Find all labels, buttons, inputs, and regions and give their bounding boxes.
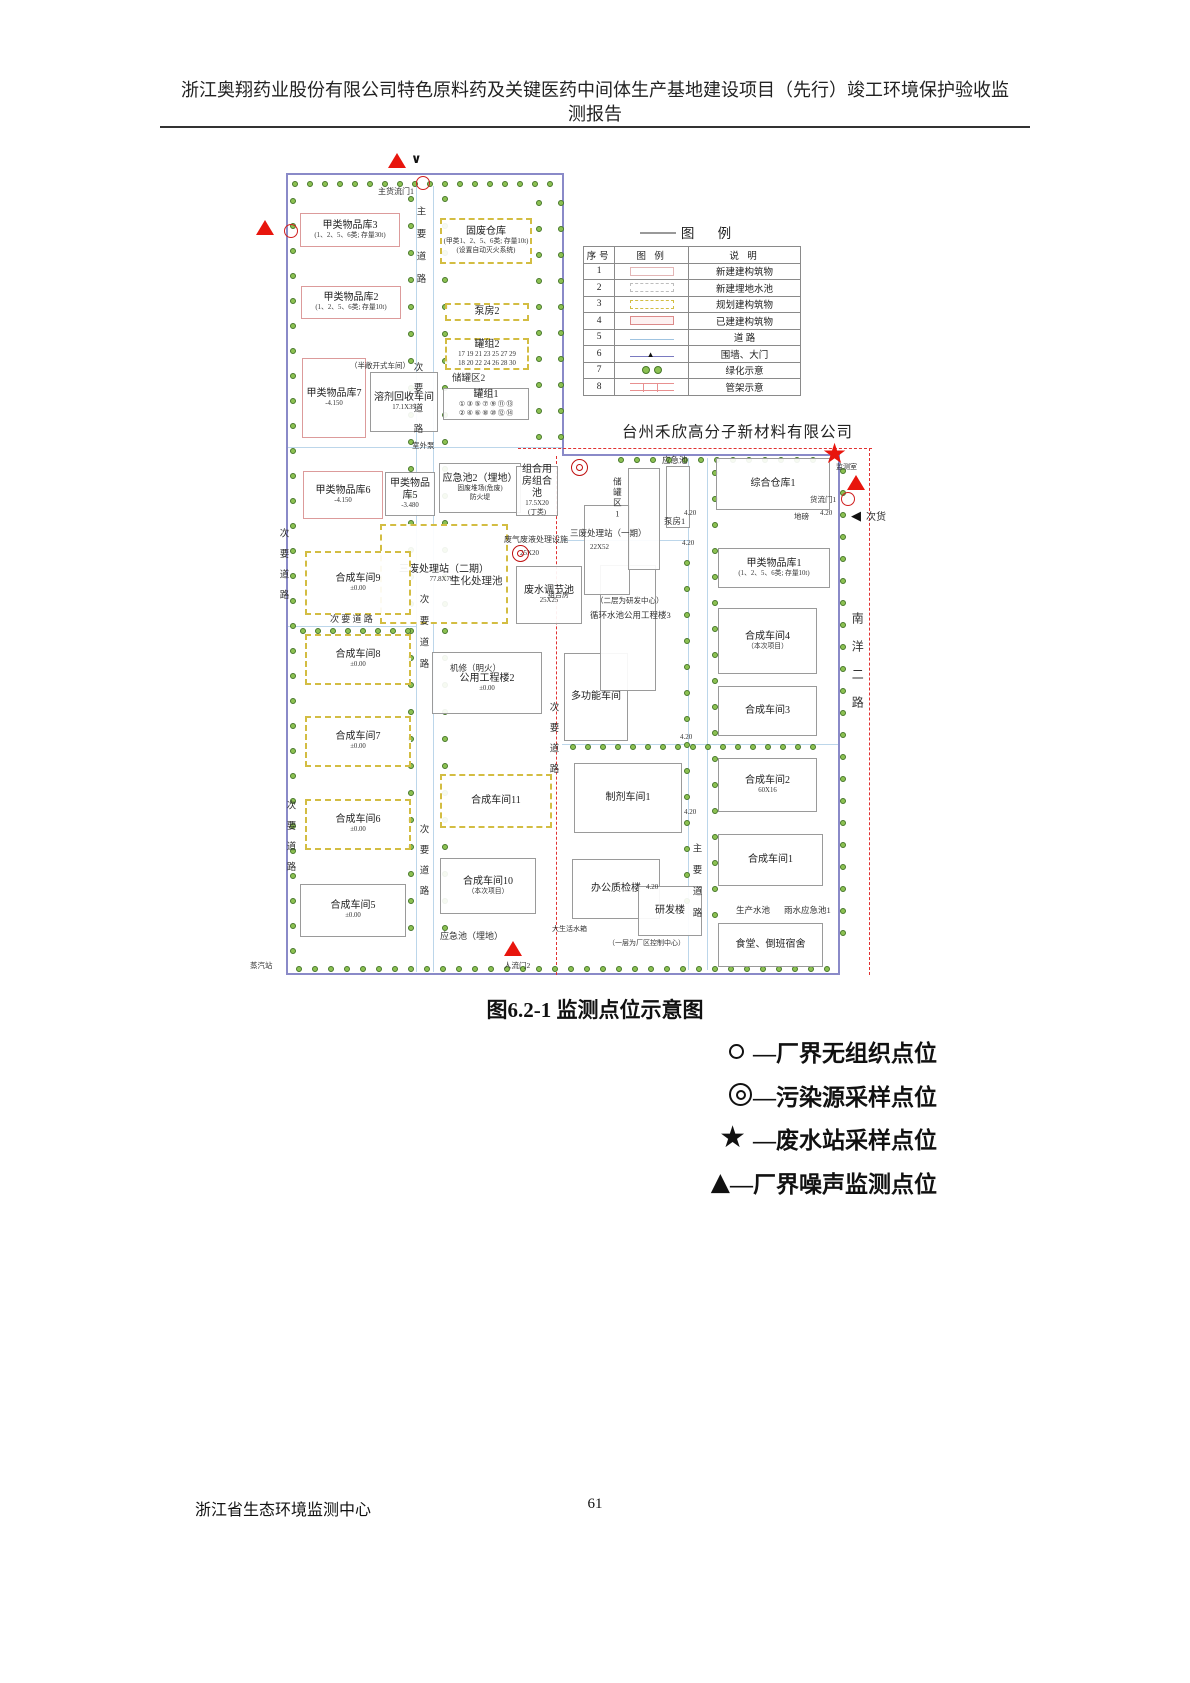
map-text-label: 次货 bbox=[866, 512, 886, 523]
tree-icon bbox=[408, 709, 414, 715]
tree-icon bbox=[290, 898, 296, 904]
map-text-label: 应急池（埋地） bbox=[440, 932, 503, 942]
legend-header-symbol: 图 例 bbox=[615, 247, 689, 264]
building-sublabel: 18 20 22 24 26 28 30 bbox=[458, 360, 516, 369]
building-chuguanqu-1 bbox=[628, 468, 660, 570]
map-text-label: 22X52 bbox=[590, 544, 609, 552]
tree-icon bbox=[376, 966, 382, 972]
tree-icon bbox=[536, 434, 542, 440]
tree-icon bbox=[536, 330, 542, 336]
building-guanzu-2: 罐组217 19 21 23 25 27 2918 20 22 24 26 28… bbox=[445, 338, 529, 370]
building-jialei-wupinku-1: 甲类物品库1(1、2、5、6类; 存量10t) bbox=[718, 548, 830, 588]
building-label: 溶剂回收车间 bbox=[374, 392, 434, 404]
road-line bbox=[288, 626, 416, 627]
map-text-label: 储罐区2 bbox=[452, 374, 485, 384]
tree-icon bbox=[440, 966, 446, 972]
plant-fence-line bbox=[562, 454, 840, 456]
tree-icon bbox=[502, 181, 508, 187]
building-gongyong-gongchenglou-2: 公用工程楼2±0.00 bbox=[432, 652, 542, 714]
tree-icon bbox=[712, 678, 718, 684]
tree-icon bbox=[337, 181, 343, 187]
tree-icon bbox=[645, 744, 651, 750]
building-label: 泵房2 bbox=[475, 306, 500, 318]
building-sublabel: ±0.00 bbox=[345, 912, 361, 921]
tree-icon bbox=[367, 181, 373, 187]
map-text-label: 主货流门1 bbox=[378, 188, 414, 197]
building-label: 合成车间11 bbox=[471, 795, 521, 807]
building-label: 甲类物品库5 bbox=[387, 478, 433, 502]
building-sublabel: -3.480 bbox=[401, 502, 419, 511]
building-sublabel: 固废堆场(危废) bbox=[457, 485, 502, 494]
building-sublabel: ② ④ ⑥ ⑧ ⑩ ⑫ ⑭ bbox=[459, 410, 513, 419]
building-label: 制剂车间1 bbox=[606, 792, 651, 804]
building-label: 合成车间6 bbox=[336, 814, 381, 826]
tree-icon bbox=[558, 252, 564, 258]
legend-row-desc: 规划建构筑物 bbox=[689, 296, 801, 313]
tree-icon bbox=[344, 966, 350, 972]
tree-icon bbox=[290, 923, 296, 929]
tree-icon bbox=[618, 457, 624, 463]
tree-icon bbox=[684, 586, 690, 592]
tree-icon bbox=[290, 448, 296, 454]
tree-icon bbox=[600, 744, 606, 750]
building-label: 罐组1 bbox=[474, 389, 499, 401]
legend-row: 2新建埋地水池 bbox=[584, 280, 801, 297]
tree-icon bbox=[442, 331, 448, 337]
tree-icon bbox=[840, 930, 846, 936]
map-text-label: 生化处理池 bbox=[450, 576, 503, 588]
legend-row: 6围墙、大门 bbox=[584, 346, 801, 363]
tree-icon bbox=[712, 522, 718, 528]
tree-icon bbox=[840, 666, 846, 672]
building-label: 食堂、倒班宿舍 bbox=[736, 939, 806, 951]
legend-row-desc: 新建建构筑物 bbox=[689, 263, 801, 280]
circle-marker bbox=[416, 176, 430, 190]
tree-icon bbox=[328, 966, 334, 972]
road-name-label: 储罐区1 bbox=[612, 477, 621, 521]
building-zhiji-1: 制剂车间1 bbox=[574, 763, 682, 833]
tree-icon bbox=[290, 498, 296, 504]
existing-symbol-icon bbox=[630, 316, 674, 325]
tree-icon bbox=[765, 744, 771, 750]
tree-icon bbox=[840, 842, 846, 848]
tree-icon bbox=[536, 408, 542, 414]
legend-row-symbol-cell bbox=[615, 329, 689, 346]
road-name-label: 次要道路 bbox=[417, 824, 427, 906]
tree-icon bbox=[630, 744, 636, 750]
triangle-marker bbox=[256, 220, 274, 235]
tree-icon bbox=[570, 744, 576, 750]
map-text-label: 4.20 bbox=[820, 510, 832, 518]
tree-icon bbox=[290, 423, 296, 429]
building-sublabel: (甲类1、2、5、6类; 存量10t) bbox=[444, 238, 529, 247]
legend-row-symbol-cell bbox=[615, 346, 689, 363]
building-sublabel: ±0.00 bbox=[479, 685, 495, 694]
map-legend-box: 图 例 序号 图 例 说 明 1新建建构筑物2新建埋地水池3规划建构筑物4已建建… bbox=[583, 222, 801, 396]
new-building-symbol-icon bbox=[630, 267, 674, 276]
road-name-label: 次要道路 bbox=[547, 702, 557, 784]
tree-icon bbox=[408, 871, 414, 877]
tree-icon bbox=[290, 598, 296, 604]
tree-icon bbox=[536, 252, 542, 258]
triangle-marker bbox=[504, 941, 522, 956]
legend-row-no: 6 bbox=[584, 346, 615, 363]
tree-icon bbox=[750, 744, 756, 750]
map-text-label: 大生活水箱 bbox=[552, 926, 587, 934]
tree-icon bbox=[585, 744, 591, 750]
tree-icon bbox=[536, 356, 542, 362]
map-text-label: 4.20 bbox=[684, 510, 696, 518]
map-text-label: （一层为厂区控制中心） bbox=[608, 940, 685, 948]
legend-row: 5道 路 bbox=[584, 329, 801, 346]
tree-icon bbox=[408, 790, 414, 796]
building-label: 合成车间9 bbox=[336, 573, 381, 585]
legend-row-no: 4 bbox=[584, 313, 615, 330]
tree-icon bbox=[442, 439, 448, 445]
building-sublabel: ±0.00 bbox=[350, 661, 366, 670]
page-number: 61 bbox=[0, 1496, 1190, 1513]
tree-icon bbox=[442, 196, 448, 202]
building-hecheng-5: 合成车间5±0.00 bbox=[300, 884, 406, 937]
map-text-label: 循环水池公用工程楼3 bbox=[590, 611, 671, 620]
building-label: 甲类物品库6 bbox=[316, 485, 371, 497]
tree-icon bbox=[720, 744, 726, 750]
tree-icon bbox=[290, 673, 296, 679]
report-page: 浙江奥翔药业股份有限公司特色原料药及关键医药中间体生产基地建设项目（先行）竣工环… bbox=[0, 0, 1190, 1683]
building-label: 综合仓库1 bbox=[751, 478, 796, 490]
legend-row-symbol-cell bbox=[615, 379, 689, 396]
tree-icon bbox=[392, 966, 398, 972]
greenery-symbol-icon bbox=[630, 366, 674, 375]
building-gufei-cangku: 固废仓库(甲类1、2、5、6类; 存量10t)(设置自动灭火系统) bbox=[440, 218, 532, 264]
tree-icon bbox=[290, 648, 296, 654]
tree-icon bbox=[290, 698, 296, 704]
legend-row-desc: 绿化示意 bbox=[689, 362, 801, 379]
map-text-label: 4.20 bbox=[684, 809, 696, 817]
building-label: 甲类物品库1 bbox=[747, 558, 802, 570]
building-label: 合成车间4 bbox=[745, 631, 790, 643]
tree-icon bbox=[558, 382, 564, 388]
circle-marker bbox=[284, 224, 298, 238]
legend-row: 8管架示意 bbox=[584, 379, 801, 396]
building-hecheng-3: 合成车间3 bbox=[718, 686, 817, 736]
tree-icon bbox=[442, 628, 448, 634]
building-label: 合成车间8 bbox=[336, 649, 381, 661]
tree-icon bbox=[558, 278, 564, 284]
building-label: 罐组2 bbox=[475, 339, 500, 351]
project-boundary-dashed bbox=[869, 448, 870, 975]
road-name-label: 次要道路 bbox=[411, 362, 421, 444]
triangle-marker bbox=[847, 475, 865, 490]
tree-icon bbox=[600, 966, 606, 972]
tree-icon bbox=[810, 744, 816, 750]
building-jialei-wupinku-5: 甲类物品库5-3.480 bbox=[385, 472, 435, 516]
building-jialei-wupinku-3: 甲类物品库3(1、2、5、6类; 存量30t) bbox=[300, 213, 400, 247]
legend-row-symbol-cell bbox=[615, 362, 689, 379]
point-legend-item: —厂界无组织点位 bbox=[722, 1033, 937, 1069]
tree-icon bbox=[536, 200, 542, 206]
map-text-label: 雨水应急池1 bbox=[784, 906, 831, 915]
map-text-label: 货流门1 bbox=[810, 496, 836, 504]
legend-header-desc: 说 明 bbox=[689, 247, 801, 264]
map-text-label: 人流门2 bbox=[504, 962, 530, 970]
figure-caption: 图6.2-1 监测点位示意图 bbox=[0, 994, 1190, 1024]
building-hecheng-7: 合成车间7±0.00 bbox=[305, 716, 411, 767]
point-legend-label: —厂界无组织点位 bbox=[753, 1034, 937, 1068]
tree-icon bbox=[290, 323, 296, 329]
building-bengfang-2: 泵房2 bbox=[445, 303, 529, 321]
tree-icon bbox=[536, 966, 542, 972]
road-name-label: 次要道路 bbox=[284, 800, 294, 882]
tree-icon bbox=[536, 382, 542, 388]
tree-icon bbox=[442, 763, 448, 769]
tree-icon bbox=[840, 556, 846, 562]
tree-icon bbox=[352, 181, 358, 187]
building-label: 合成车间1 bbox=[748, 854, 793, 866]
neighbor-company-label: 台州禾欣高分子新材料有限公司 bbox=[622, 420, 853, 442]
tree-icon bbox=[690, 744, 696, 750]
tree-icon bbox=[684, 560, 690, 566]
building-sublabel: ±0.00 bbox=[350, 826, 366, 835]
tree-icon bbox=[290, 298, 296, 304]
building-label: 组合用房组合池 bbox=[518, 464, 556, 500]
tree-icon bbox=[408, 966, 414, 972]
tree-icon bbox=[296, 966, 302, 972]
point-legend-label: —厂界噪声监测点位 bbox=[730, 1165, 937, 1199]
tree-icon bbox=[290, 248, 296, 254]
building-jialei-wupinku-2: 甲类物品库2(1、2、5、6类; 存量10t) bbox=[301, 286, 401, 319]
tree-icon bbox=[290, 773, 296, 779]
point-legend-item: ★—废水站采样点位 bbox=[717, 1120, 937, 1156]
building-hecheng-6: 合成车间6±0.00 bbox=[305, 799, 411, 850]
map-text-label: 生产水池 bbox=[736, 906, 770, 915]
tree-icon bbox=[840, 688, 846, 694]
road-name-label: 主要道路 bbox=[414, 206, 424, 296]
double-circle-marker bbox=[512, 545, 529, 562]
tree-icon bbox=[290, 523, 296, 529]
road-symbol-icon bbox=[630, 339, 674, 340]
building-sublabel: ① ③ ⑤ ⑦ ⑨ ⑪ ⑬ bbox=[459, 401, 513, 410]
tree-icon bbox=[712, 886, 718, 892]
tree-icon bbox=[840, 864, 846, 870]
planned-symbol-icon bbox=[630, 300, 674, 309]
arrow-left-marker: ◀ bbox=[851, 510, 861, 523]
road-name-label: 南洋二路 bbox=[850, 612, 863, 724]
tree-icon bbox=[840, 886, 846, 892]
tree-icon bbox=[840, 776, 846, 782]
building-sublabel: (丁类) bbox=[528, 509, 546, 518]
building-jialei-wupinku-6: 甲类物品库6-4.150 bbox=[303, 471, 383, 519]
tree-icon bbox=[675, 744, 681, 750]
map-text-label: 地磅 bbox=[794, 513, 809, 521]
building-hecheng-1: 合成车间1 bbox=[718, 834, 823, 886]
building-label: 多功能车间 bbox=[571, 691, 621, 703]
tree-icon bbox=[840, 600, 846, 606]
tree-icon bbox=[840, 732, 846, 738]
tree-icon bbox=[487, 181, 493, 187]
legend-row-no: 1 bbox=[584, 263, 615, 280]
tree-icon bbox=[472, 966, 478, 972]
noise-point-icon: ▲ bbox=[711, 1169, 730, 1194]
legend-dash-line bbox=[640, 232, 676, 234]
map-text-label: 三废处理站（一期） bbox=[570, 529, 647, 538]
building-sublabel: ±0.00 bbox=[350, 585, 366, 594]
tree-icon bbox=[558, 330, 564, 336]
building-label: 应急池2（埋地） bbox=[443, 473, 518, 485]
tree-icon bbox=[840, 578, 846, 584]
plant-fence-line bbox=[286, 973, 840, 975]
tree-icon bbox=[568, 966, 574, 972]
tree-icon bbox=[684, 794, 690, 800]
map-text-label: 组合房 bbox=[548, 592, 569, 600]
tree-icon bbox=[632, 966, 638, 972]
building-zuhe-yongfang: 组合用房组合池17.5X20(丁类) bbox=[516, 466, 558, 516]
legend-row-desc: 已建建构筑物 bbox=[689, 313, 801, 330]
map-text-label: 废气废液处理设施 bbox=[504, 536, 568, 545]
tree-icon bbox=[840, 512, 846, 518]
building-sublabel: ±0.00 bbox=[350, 743, 366, 752]
building-sublabel: 17.5X20 bbox=[525, 500, 549, 509]
tree-icon bbox=[660, 744, 666, 750]
legend-header-row: 序号 图 例 说 明 bbox=[584, 247, 801, 264]
building-hecheng-2: 合成车间260X16 bbox=[718, 758, 817, 812]
building-sublabel: 17 19 21 23 25 27 29 bbox=[458, 351, 516, 360]
tree-icon bbox=[442, 181, 448, 187]
legend-row-symbol-cell bbox=[615, 296, 689, 313]
tree-icon bbox=[664, 966, 670, 972]
tree-icon bbox=[558, 200, 564, 206]
building-yingjichi-2: 应急池2（埋地）固废堆场(危废)防火堤 bbox=[439, 463, 521, 513]
tree-icon bbox=[684, 820, 690, 826]
map-text-label: （二层为研发中心） bbox=[596, 597, 664, 605]
point-legend-label: —废水站采样点位 bbox=[753, 1121, 937, 1155]
triangle-marker bbox=[388, 153, 406, 168]
tree-icon bbox=[840, 534, 846, 540]
tree-icon bbox=[290, 398, 296, 404]
pipe-rack-symbol-icon bbox=[630, 383, 674, 391]
map-text-label: 4.20 bbox=[680, 734, 692, 742]
new-pool-symbol-icon bbox=[630, 283, 674, 292]
building-sublabel: (设置自动灭火系统) bbox=[457, 247, 516, 256]
tree-icon bbox=[536, 304, 542, 310]
tree-icon bbox=[650, 457, 656, 463]
tree-icon bbox=[290, 723, 296, 729]
tree-icon bbox=[705, 744, 711, 750]
tree-icon bbox=[684, 612, 690, 618]
tree-icon bbox=[698, 457, 704, 463]
tree-icon bbox=[472, 181, 478, 187]
map-text-label: 次 要 道 路 bbox=[330, 615, 373, 625]
point-legend-item: ▲—厂界噪声监测点位 bbox=[711, 1164, 937, 1200]
tree-icon bbox=[840, 820, 846, 826]
tree-icon bbox=[290, 548, 296, 554]
building-label: 办公质检楼 bbox=[591, 883, 641, 895]
tree-icon bbox=[558, 226, 564, 232]
double-circle-marker bbox=[571, 459, 588, 476]
tree-icon bbox=[840, 754, 846, 760]
tree-icon bbox=[290, 948, 296, 954]
building-sublabel: (1、2、5、6类; 存量10t) bbox=[738, 570, 809, 579]
tree-icon bbox=[536, 226, 542, 232]
tree-icon bbox=[312, 966, 318, 972]
tree-icon bbox=[360, 966, 366, 972]
tree-icon bbox=[442, 844, 448, 850]
legend-row-symbol-cell bbox=[615, 263, 689, 280]
tree-icon bbox=[442, 736, 448, 742]
building-sublabel: （本次项目） bbox=[747, 643, 788, 652]
tree-icon bbox=[408, 898, 414, 904]
tree-icon bbox=[408, 196, 414, 202]
tree-icon bbox=[780, 744, 786, 750]
map-text-label: 泵房1 bbox=[664, 517, 685, 526]
building-shitang-sushe: 食堂、倒班宿舍 bbox=[718, 923, 823, 967]
building-hecheng-9: 合成车间9±0.00 bbox=[305, 551, 411, 615]
tree-icon bbox=[290, 348, 296, 354]
tree-icon bbox=[558, 434, 564, 440]
building-sublabel: 60X16 bbox=[758, 787, 777, 796]
map-text-label: 4.20 bbox=[682, 540, 694, 548]
tree-icon bbox=[517, 181, 523, 187]
tree-icon bbox=[616, 966, 622, 972]
building-sublabel: 防火堤 bbox=[470, 494, 490, 503]
fenceline-point-icon bbox=[729, 1044, 744, 1059]
road-line bbox=[707, 458, 708, 970]
check-marker: ∨ bbox=[411, 153, 422, 166]
tree-icon bbox=[322, 181, 328, 187]
building-hecheng-11: 合成车间11 bbox=[440, 774, 552, 828]
building-sublabel: -4.150 bbox=[334, 497, 352, 506]
tree-icon bbox=[536, 278, 542, 284]
building-sublabel: -4.150 bbox=[325, 400, 343, 409]
building-hecheng-10: 合成车间10（本次项目） bbox=[440, 858, 536, 914]
tree-icon bbox=[552, 966, 558, 972]
tree-icon bbox=[840, 710, 846, 716]
point-legend-item: —污染源采样点位 bbox=[729, 1077, 937, 1113]
tree-icon bbox=[684, 716, 690, 722]
tree-icon bbox=[684, 664, 690, 670]
tree-icon bbox=[795, 744, 801, 750]
tree-icon bbox=[558, 356, 564, 362]
legend-row-desc: 管架示意 bbox=[689, 379, 801, 396]
road-name-label: 主要道路 bbox=[690, 843, 700, 929]
building-label: 研发楼 bbox=[655, 905, 685, 917]
project-boundary-dashed bbox=[518, 448, 872, 449]
tree-icon bbox=[442, 277, 448, 283]
map-text-label: 机修（明火） bbox=[450, 664, 501, 673]
tree-icon bbox=[547, 181, 553, 187]
pollution-source-point-icon bbox=[729, 1083, 752, 1106]
tree-icon bbox=[290, 623, 296, 629]
legend-row: 4已建建构筑物 bbox=[584, 313, 801, 330]
tree-icon bbox=[307, 181, 313, 187]
tree-icon bbox=[558, 304, 564, 310]
tree-icon bbox=[488, 966, 494, 972]
star-marker: ★ bbox=[822, 440, 847, 468]
tree-icon bbox=[408, 925, 414, 931]
legend-row-symbol-cell bbox=[615, 313, 689, 330]
legend-row-desc: 围墙、大门 bbox=[689, 346, 801, 363]
building-label: 合成车间2 bbox=[745, 775, 790, 787]
tree-icon bbox=[424, 966, 430, 972]
building-rongji-huishou: 溶剂回收车间17.1X39 bbox=[370, 372, 438, 432]
building-label: 合成车间10 bbox=[463, 876, 513, 888]
circle-marker bbox=[841, 492, 855, 506]
tree-icon bbox=[584, 966, 590, 972]
building-label: 三废处理站（二期） bbox=[399, 564, 489, 576]
map-text-label: （半敞开式车间） bbox=[350, 362, 410, 370]
tree-icon bbox=[712, 912, 718, 918]
tree-icon bbox=[408, 331, 414, 337]
